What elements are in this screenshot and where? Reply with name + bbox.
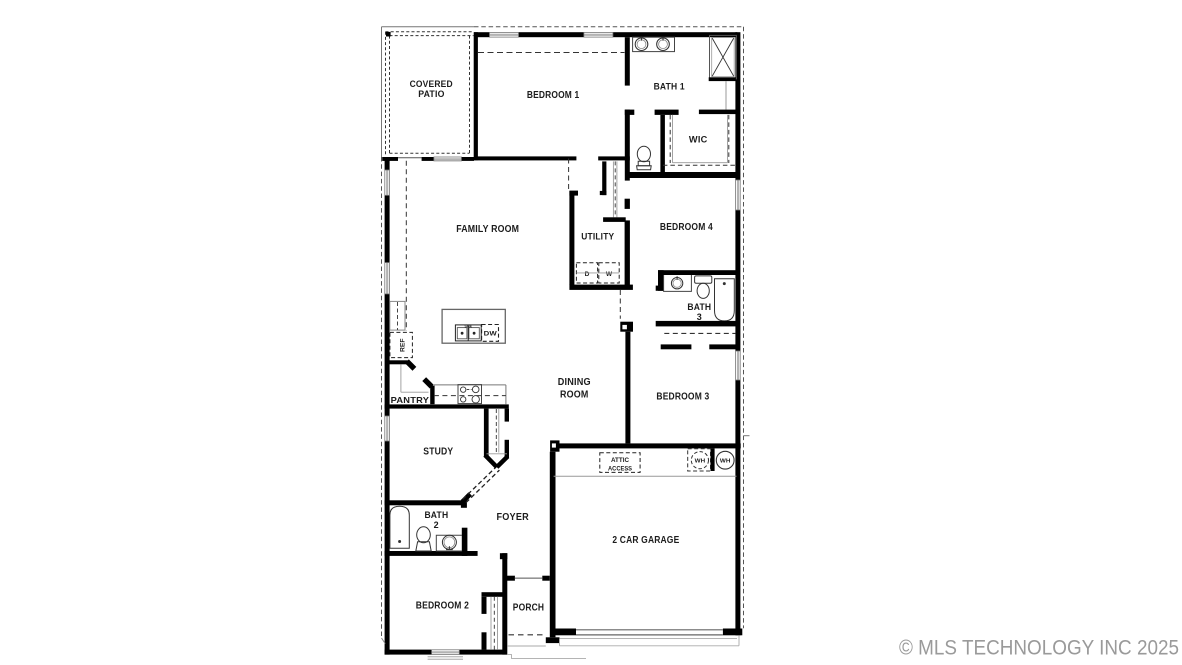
svg-text:2: 2 — [434, 520, 439, 530]
svg-text:BATH: BATH — [424, 510, 448, 520]
svg-text:UTILITY: UTILITY — [581, 231, 614, 241]
svg-text:W: W — [606, 271, 613, 278]
svg-text:ACCESS: ACCESS — [608, 465, 632, 472]
svg-text:COVERED: COVERED — [410, 79, 453, 89]
svg-text:3: 3 — [697, 312, 702, 322]
svg-text:REF: REF — [399, 338, 406, 352]
svg-text:PATIO: PATIO — [418, 89, 444, 99]
svg-text:FOYER: FOYER — [497, 512, 529, 523]
svg-text:STUDY: STUDY — [423, 446, 453, 457]
svg-text:BEDROOM 2: BEDROOM 2 — [416, 600, 470, 611]
svg-text:PORCH: PORCH — [513, 602, 544, 613]
svg-text:WH: WH — [695, 458, 706, 464]
svg-text:WIC: WIC — [689, 134, 708, 144]
svg-text:BEDROOM 3: BEDROOM 3 — [656, 392, 709, 403]
svg-text:ATTIC: ATTIC — [611, 457, 629, 464]
svg-text:FAMILY ROOM: FAMILY ROOM — [456, 224, 519, 235]
svg-text:ROOM: ROOM — [560, 390, 589, 401]
svg-text:PANTRY: PANTRY — [391, 395, 430, 405]
svg-text:BEDROOM 4: BEDROOM 4 — [660, 222, 713, 233]
svg-text:© MLS TECHNOLOGY INC 2025: © MLS TECHNOLOGY INC 2025 — [899, 637, 1179, 660]
svg-text:WH: WH — [720, 458, 731, 464]
svg-text:SINK: SINK — [464, 324, 472, 328]
svg-text:DINING: DINING — [558, 377, 591, 388]
svg-text:D: D — [585, 271, 590, 278]
svg-text:2 CAR GARAGE: 2 CAR GARAGE — [612, 535, 679, 546]
svg-text:BATH: BATH — [687, 302, 711, 312]
svg-text:BEDROOM 1: BEDROOM 1 — [527, 90, 580, 101]
svg-text:BATH 1: BATH 1 — [654, 81, 685, 91]
svg-text:DW: DW — [484, 331, 498, 338]
